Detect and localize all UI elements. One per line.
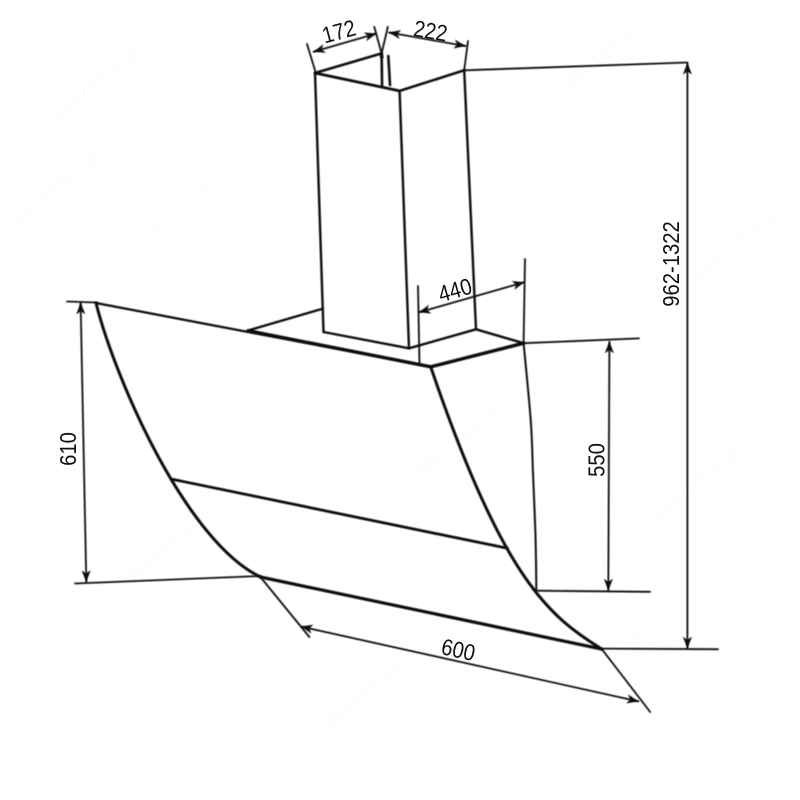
svg-text:610: 610 [55, 432, 82, 466]
svg-text:550: 550 [583, 443, 610, 477]
svg-text:962-1322: 962-1322 [658, 221, 685, 307]
